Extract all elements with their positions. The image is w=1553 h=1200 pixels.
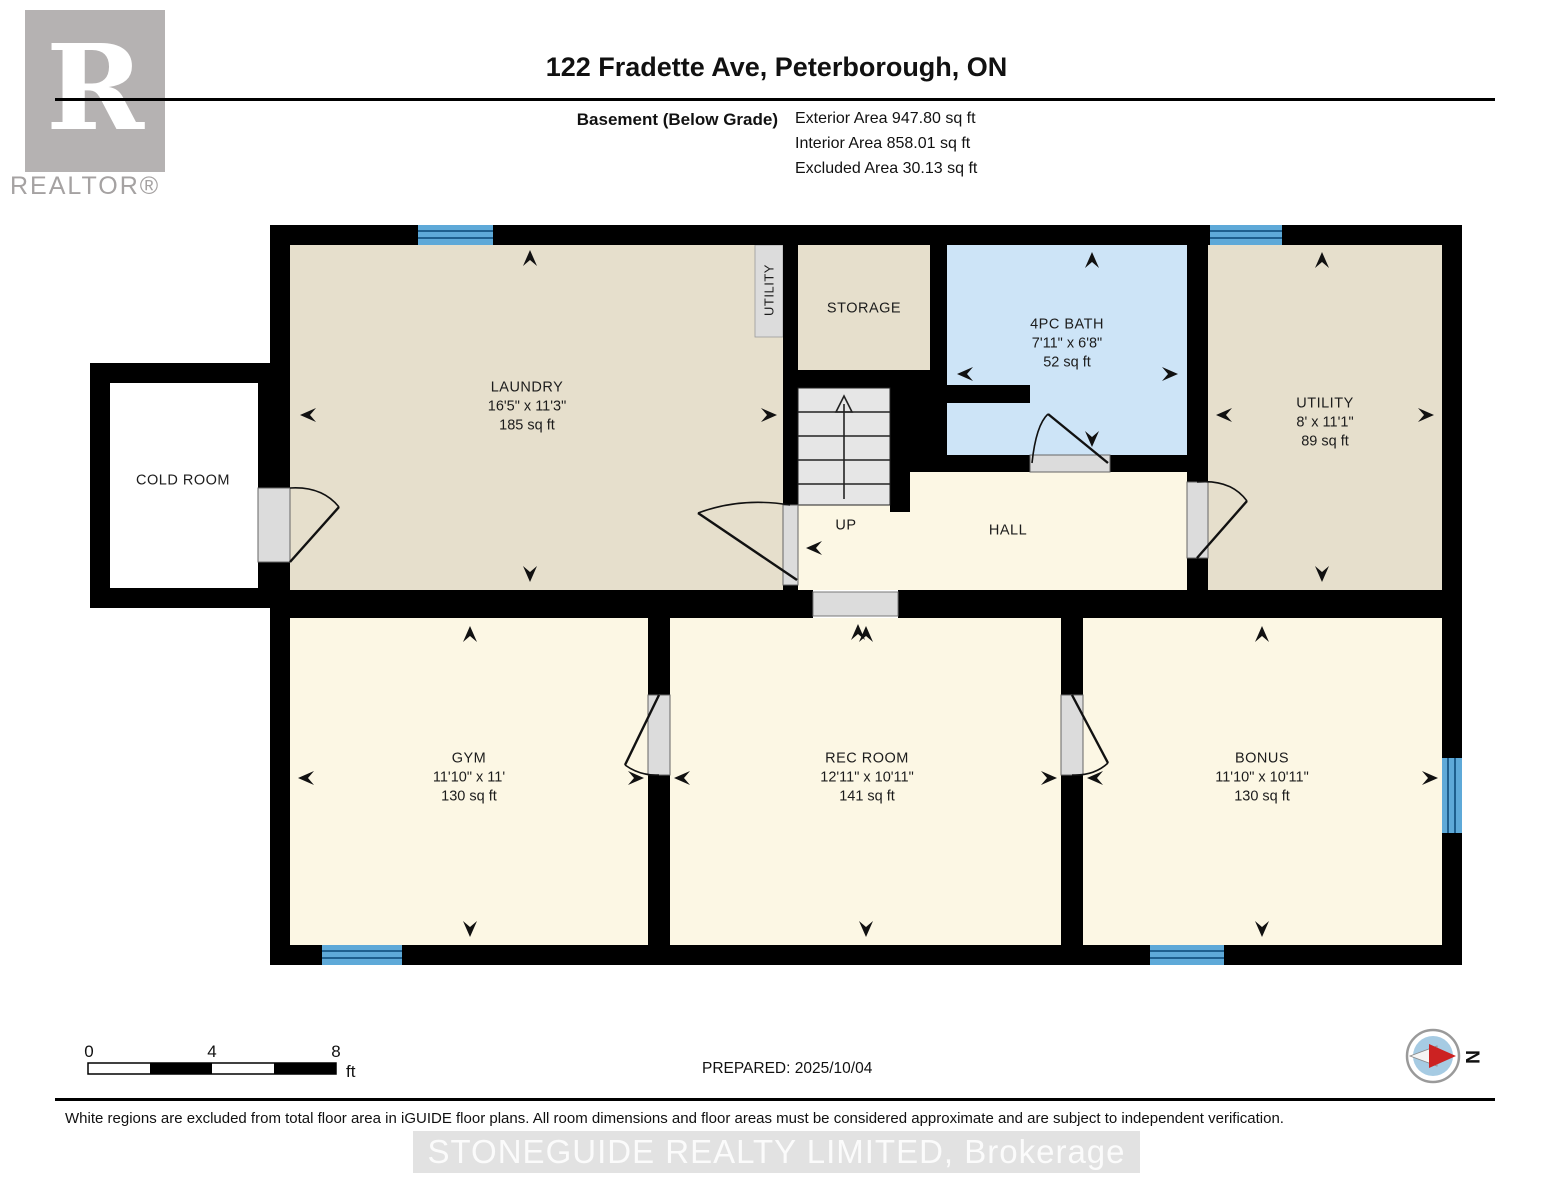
brokerage-watermark: STONEGUIDE REALTY LIMITED, Brokerage	[0, 1131, 1553, 1173]
prepared-date: PREPARED: 2025/10/04	[702, 1060, 872, 1078]
scale-bar	[88, 1063, 336, 1074]
room-label-bath: 4PC BATH 7'11" x 6'8" 52 sq ft	[1030, 316, 1104, 373]
room-label-up: UP	[835, 517, 856, 536]
hall-upper-floor	[910, 472, 1187, 505]
room-label-utility-closet: UTILITY	[760, 264, 779, 316]
footer-divider	[55, 1098, 1495, 1101]
compass-icon	[1407, 1030, 1459, 1082]
scale-label-8: 8	[331, 1042, 340, 1062]
scale-unit: ft	[346, 1062, 355, 1082]
room-label-storage: STORAGE	[827, 300, 901, 319]
room-label-bonus: BONUS 11'10" x 10'11" 130 sq ft	[1215, 750, 1309, 807]
disclaimer-text: White regions are excluded from total fl…	[65, 1110, 1485, 1127]
scale-label-4: 4	[207, 1042, 216, 1062]
opening-hall-rec	[813, 592, 898, 616]
room-label-gym: GYM 11'10" x 11' 130 sq ft	[433, 750, 505, 807]
floor-plan-page: R REALTOR® 122 Fradette Ave, Peterboroug…	[0, 0, 1553, 1200]
window-laundry-top	[418, 225, 493, 245]
room-label-cold-room: COLD ROOM	[136, 472, 230, 491]
room-label-rec-room: REC ROOM 12'11" x 10'11" 141 sq ft	[820, 750, 914, 807]
room-label-hall: HALL	[989, 522, 1027, 541]
window-gym-bottom	[322, 945, 402, 965]
window-utility-top	[1210, 225, 1282, 245]
stairs	[798, 388, 890, 505]
compass-north-label: N	[1460, 1050, 1482, 1064]
window-bonus-right	[1442, 758, 1462, 833]
scale-label-0: 0	[84, 1042, 93, 1062]
floor-plan-drawing	[0, 0, 1553, 1200]
room-label-laundry: LAUNDRY 16'5" x 11'3" 185 sq ft	[488, 379, 566, 436]
room-label-utility: UTILITY 8' x 11'1" 89 sq ft	[1296, 395, 1353, 452]
window-bonus-bottom	[1150, 945, 1224, 965]
